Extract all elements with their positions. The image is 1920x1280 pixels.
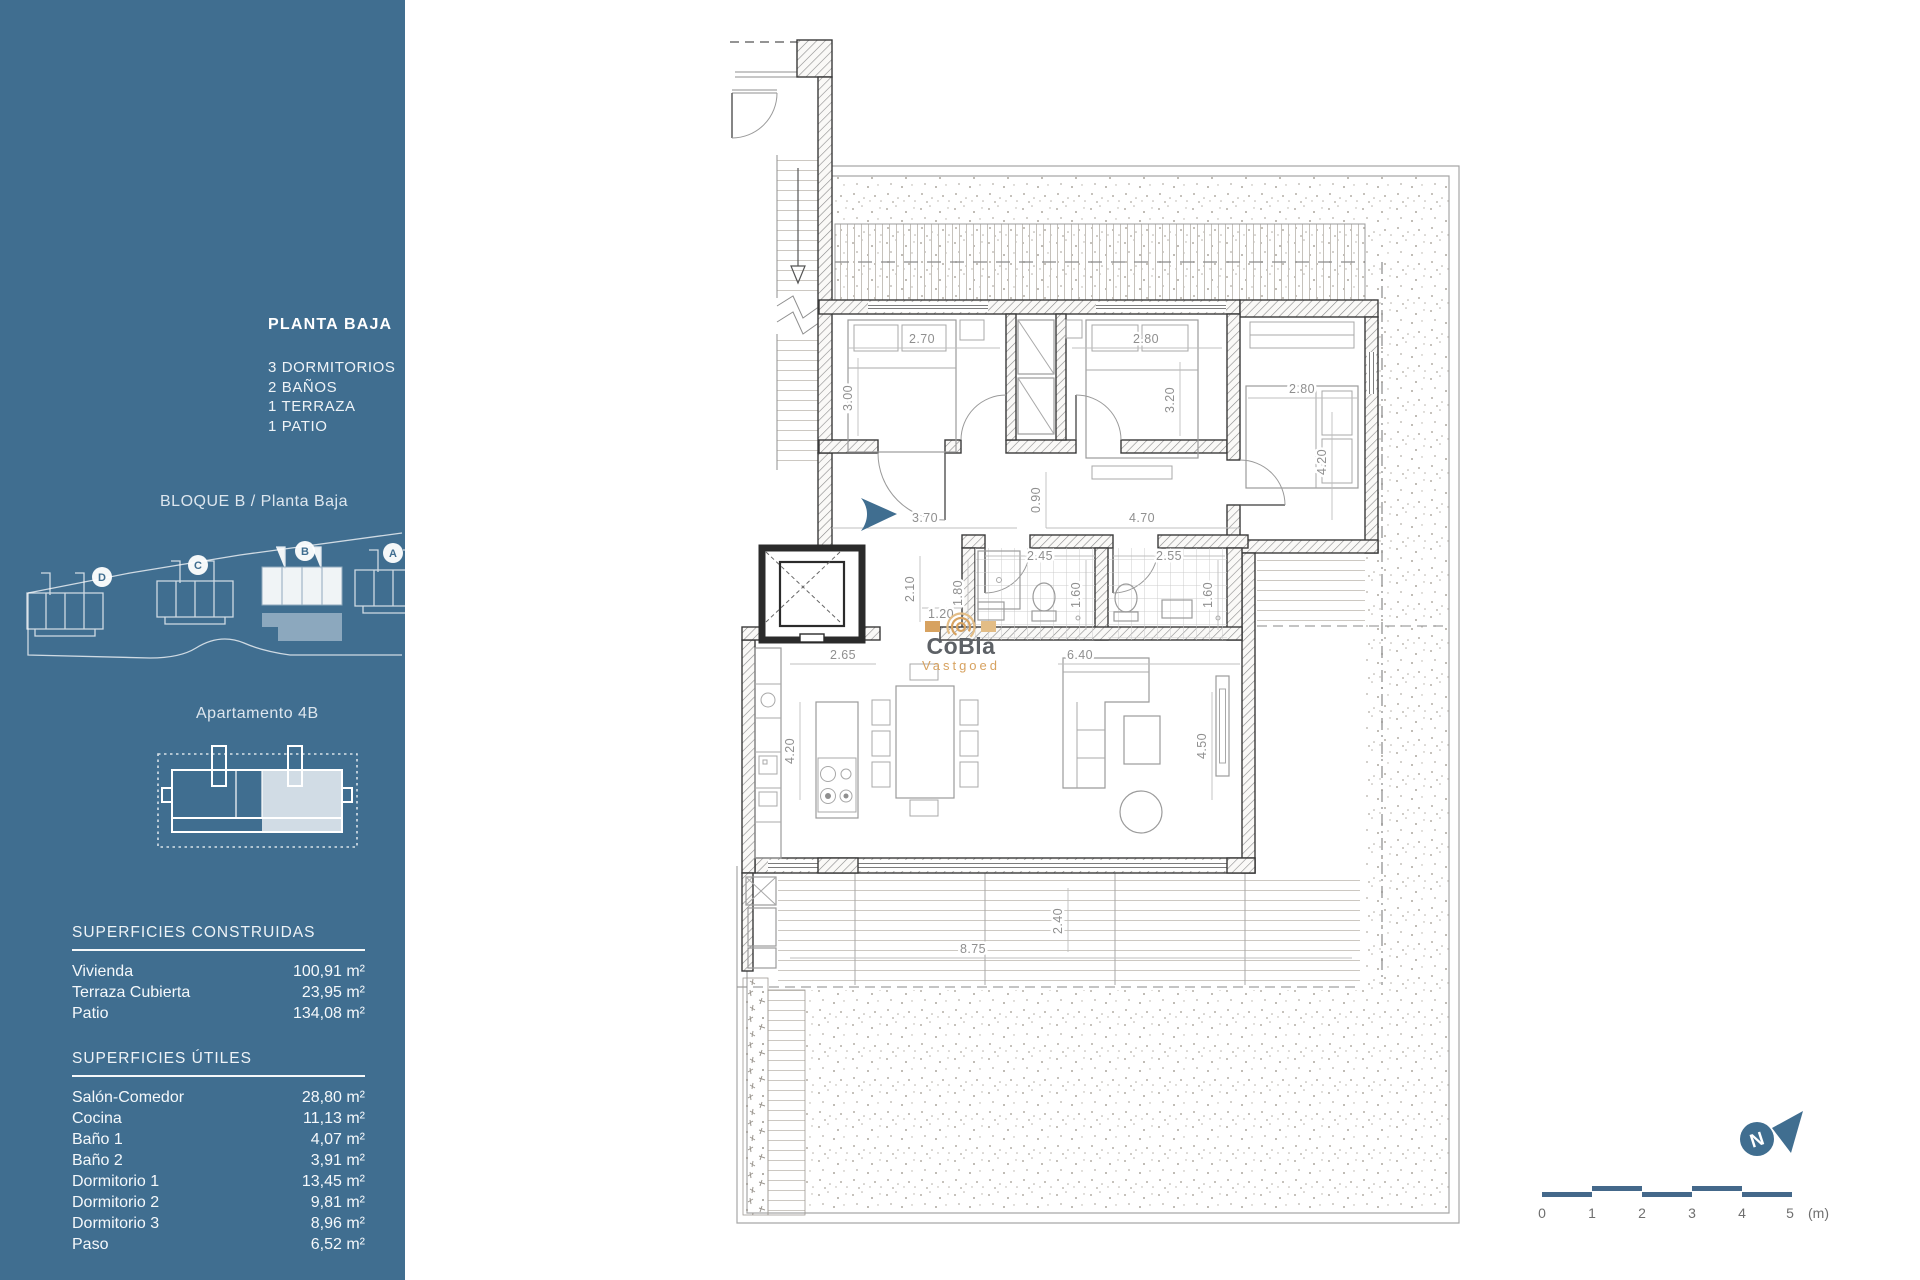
surface-label: Baño 2: [72, 1152, 123, 1170]
surface-heading: SUPERFICIES ÚTILES: [72, 1050, 365, 1077]
kitchen-counter: [755, 648, 781, 858]
surface-row: Baño 1 4,07 m²: [72, 1131, 365, 1152]
dim-label: 4.50: [1195, 733, 1209, 759]
surface-row: Dormitorio 1 13,45 m²: [72, 1173, 365, 1194]
dim-label: 0.90: [1029, 487, 1043, 513]
site-block-badges: D C B A: [92, 541, 403, 587]
scale-tick-label: 3: [1688, 1205, 1696, 1221]
dim-label: 6.40: [1067, 648, 1093, 662]
feature-item: 3 DORMITORIOS: [268, 358, 396, 378]
roof-stripe-band: [835, 224, 1365, 300]
scale-tick-label: 5: [1786, 1205, 1794, 1221]
closet: [1018, 320, 1054, 434]
surface-value: 6,52 m²: [311, 1236, 365, 1254]
surface-label: Baño 1: [72, 1131, 123, 1149]
scale-tick-label: 0: [1538, 1205, 1546, 1221]
dim-label: 2.40: [1051, 908, 1065, 934]
surface-row: Vivienda 100,91 m²: [72, 963, 365, 984]
dim-label: 2.10: [903, 576, 917, 602]
site-block-badge: A: [389, 548, 397, 560]
feature-item: 1 PATIO: [268, 417, 396, 437]
surface-label: Terraza Cubierta: [72, 984, 190, 1002]
surface-label: Dormitorio 3: [72, 1215, 159, 1233]
planting-strip: [743, 978, 805, 1215]
surface-row: Dormitorio 3 8,96 m²: [72, 1215, 365, 1236]
north-arrow-icon: N: [1740, 1111, 1803, 1156]
surface-row: Salón-Comedor 28,80 m²: [72, 1089, 365, 1110]
surface-value: 3,91 m²: [311, 1152, 365, 1170]
stairs: [730, 42, 822, 470]
dim-label: 2.55: [1156, 549, 1182, 563]
dim-label: 2.45: [1027, 549, 1053, 563]
dim-label: 1.80: [951, 580, 965, 606]
site-block-badge: B: [301, 546, 309, 558]
scale-tick-label: 2: [1638, 1205, 1646, 1221]
page-title: PLANTA BAJA: [268, 316, 392, 334]
scale-tick-label: 4: [1738, 1205, 1746, 1221]
feature-item: 2 BAÑOS: [268, 378, 396, 398]
surface-table-useful: SUPERFICIES ÚTILES Salón-Comedor 28,80 m…: [72, 1050, 365, 1257]
surface-value: 100,91 m²: [293, 963, 365, 981]
feature-list: 3 DORMITORIOS 2 BAÑOS 1 TERRAZA 1 PATIO: [268, 358, 396, 436]
kitchen-island: [816, 702, 858, 818]
site-block-b-footprint: [262, 613, 342, 641]
dim-label: 3.20: [1163, 387, 1177, 413]
dim-label: 4.20: [783, 738, 797, 764]
dim-label: 1.60: [1069, 582, 1083, 608]
entrance-arrow-icon: [861, 498, 897, 531]
surface-label: Paso: [72, 1236, 108, 1254]
side-steps: [1257, 553, 1365, 625]
surface-value: 134,08 m²: [293, 1005, 365, 1023]
dim-label: 4.70: [1129, 511, 1155, 525]
surface-value: 13,45 m²: [302, 1173, 365, 1191]
surface-value: 8,96 m²: [311, 1215, 365, 1233]
surface-table-built: SUPERFICIES CONSTRUIDAS Vivienda 100,91 …: [72, 924, 365, 1026]
surface-value: 11,13 m²: [303, 1110, 365, 1128]
surface-label: Dormitorio 2: [72, 1194, 159, 1212]
surface-row: Terraza Cubierta 23,95 m²: [72, 984, 365, 1005]
surface-row: Paso 6,52 m²: [72, 1236, 365, 1257]
garden-steps: [768, 990, 805, 1215]
entrance-door-arc: [878, 453, 945, 520]
scale-unit: (m): [1808, 1205, 1829, 1221]
apartment-label: Apartamento 4B: [196, 705, 319, 723]
site-block-badge: C: [194, 560, 202, 572]
dim-label: 2.80: [1133, 332, 1159, 346]
scale-bar: 0 1 2 3 4 5 (m): [1538, 1186, 1829, 1221]
surface-row: Cocina 11,13 m²: [72, 1110, 365, 1131]
window-pier: [818, 858, 858, 873]
landing-door-arc: [732, 93, 777, 138]
dim-label: 2.65: [830, 648, 856, 662]
block-section-label: BLOQUE B / Planta Baja: [160, 493, 348, 511]
surface-heading: SUPERFICIES CONSTRUIDAS: [72, 924, 365, 951]
surface-label: Vivienda: [72, 963, 133, 981]
surface-row: Patio 134,08 m²: [72, 1005, 365, 1026]
surface-value: 23,95 m²: [302, 984, 365, 1002]
dining-set: [872, 664, 978, 816]
utility-boxes: [746, 877, 776, 968]
surface-row: Dormitorio 2 9,81 m²: [72, 1194, 365, 1215]
surface-label: Dormitorio 1: [72, 1173, 159, 1191]
surface-value: 9,81 m²: [311, 1194, 365, 1212]
window-pier: [1227, 858, 1255, 873]
screenshot-root: 2.70 3.00 2.80 3.20 2.80 4.20 3.70 0.90 …: [0, 0, 1920, 1280]
dim-label: 4.20: [1315, 449, 1329, 475]
surface-label: Cocina: [72, 1110, 122, 1128]
site-plan-diagram: D C B A: [0, 515, 405, 665]
surface-value: 4,07 m²: [311, 1131, 365, 1149]
surface-label: Salón-Comedor: [72, 1089, 184, 1107]
dim-label: 8.75: [960, 942, 986, 956]
surface-label: Patio: [72, 1005, 108, 1023]
bedroom-3-furniture: [1246, 322, 1358, 488]
dim-label: 3.00: [841, 385, 855, 411]
watermark-title: CoBla: [927, 633, 996, 659]
dim-label: 2.80: [1289, 382, 1315, 396]
surface-row: Baño 2 3,91 m²: [72, 1152, 365, 1173]
watermark-subtitle: Vastgoed: [922, 658, 1000, 673]
dim-label: 3.70: [912, 511, 938, 525]
scale-tick-label: 1: [1588, 1205, 1596, 1221]
surface-value: 28,80 m²: [302, 1089, 365, 1107]
elevator: [762, 548, 862, 642]
bedroom-2-furniture: [1066, 320, 1198, 479]
site-block-badge: D: [98, 572, 106, 584]
sidebar: PLANTA BAJA 3 DORMITORIOS 2 BAÑOS 1 TERR…: [0, 0, 405, 1280]
site-block-icon-D: [27, 573, 103, 636]
dim-label: 1.60: [1201, 582, 1215, 608]
apartment-diagram: [0, 740, 405, 860]
dim-label: 2.70: [909, 332, 935, 346]
feature-item: 1 TERRAZA: [268, 397, 396, 417]
tv-console: [1216, 676, 1229, 776]
